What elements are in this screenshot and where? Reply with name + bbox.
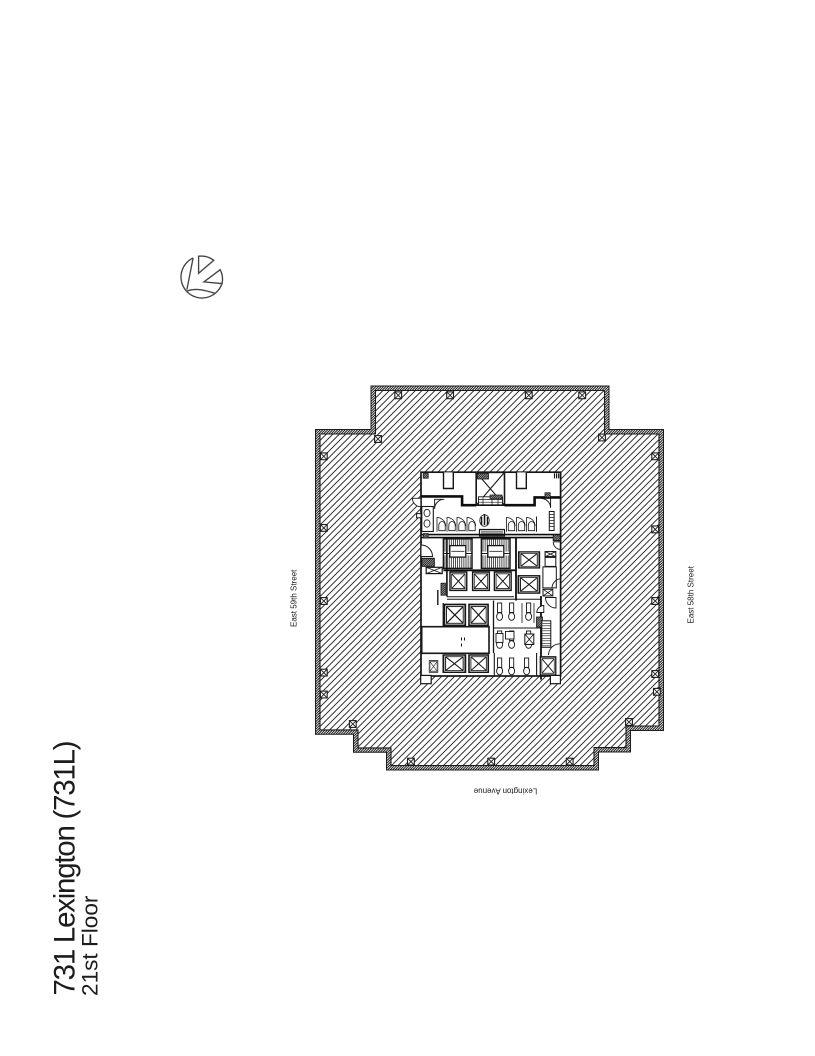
- svg-text:Lexington Avenue: Lexington Avenue: [473, 786, 537, 795]
- svg-text:East 58th Street: East 58th Street: [687, 565, 696, 623]
- svg-text:21st Floor: 21st Floor: [77, 895, 102, 996]
- svg-text:East 59th Street: East 59th Street: [289, 569, 298, 627]
